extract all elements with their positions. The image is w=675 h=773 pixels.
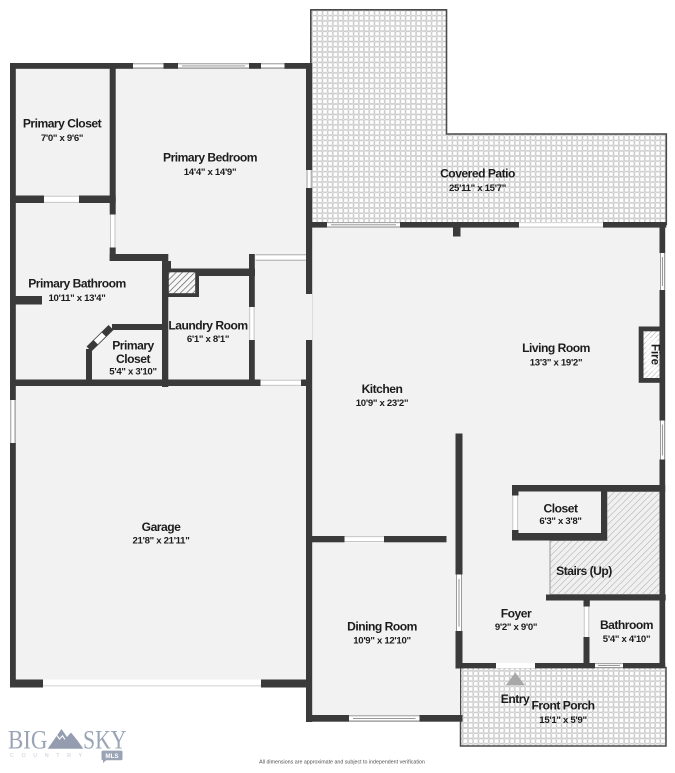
svg-text:Closet: Closet <box>116 352 150 366</box>
svg-text:7'0" x 9'6": 7'0" x 9'6" <box>41 133 83 144</box>
svg-text:Primary: Primary <box>112 339 154 353</box>
svg-text:6'3" x 3'8": 6'3" x 3'8" <box>539 516 581 527</box>
svg-text:Covered Patio: Covered Patio <box>440 167 515 181</box>
svg-text:21'8" x 21'11": 21'8" x 21'11" <box>133 536 190 547</box>
svg-text:Dining Room: Dining Room <box>347 620 417 634</box>
svg-text:Fire: Fire <box>649 344 661 365</box>
svg-text:5'4" x 4'10": 5'4" x 4'10" <box>603 634 650 645</box>
svg-text:Closet: Closet <box>544 502 578 516</box>
svg-text:14'4" x 14'9": 14'4" x 14'9" <box>184 167 236 178</box>
svg-text:Foyer: Foyer <box>501 607 532 621</box>
svg-text:MLS: MLS <box>105 753 118 760</box>
svg-text:9'2" x 9'0": 9'2" x 9'0" <box>495 622 537 633</box>
svg-text:10'9" x 23'2": 10'9" x 23'2" <box>356 398 408 409</box>
svg-text:Bathroom: Bathroom <box>600 618 653 632</box>
svg-text:Entry: Entry <box>501 692 530 706</box>
svg-text:BIG: BIG <box>8 725 48 755</box>
svg-text:15'1" x 5'9": 15'1" x 5'9" <box>539 715 586 726</box>
svg-text:Kitchen: Kitchen <box>362 382 403 396</box>
svg-text:25'11" x 15'7": 25'11" x 15'7" <box>449 183 506 194</box>
svg-text:13'3" x 19'2": 13'3" x 19'2" <box>530 358 582 369</box>
svg-text:6'1" x 8'1": 6'1" x 8'1" <box>187 334 229 345</box>
svg-text:COUNTRY: COUNTRY <box>10 753 90 759</box>
svg-text:Primary Bathroom: Primary Bathroom <box>28 277 126 291</box>
svg-text:Primary Bedroom: Primary Bedroom <box>163 151 257 165</box>
svg-text:Living Room: Living Room <box>522 341 590 355</box>
svg-text:Garage: Garage <box>142 520 181 534</box>
svg-text:Primary Closet: Primary Closet <box>23 117 102 131</box>
svg-text:10'9" x 12'10": 10'9" x 12'10" <box>353 636 410 647</box>
svg-text:Laundry Room: Laundry Room <box>168 319 247 333</box>
svg-text:All dimensions are approximate: All dimensions are approximate and subje… <box>259 760 425 766</box>
svg-text:5'4" x 3'10": 5'4" x 3'10" <box>109 367 156 378</box>
svg-text:Stairs (Up): Stairs (Up) <box>556 564 612 578</box>
svg-text:10'11" x 13'4": 10'11" x 13'4" <box>49 293 106 304</box>
svg-text:SKY: SKY <box>83 725 127 755</box>
svg-text:Front Porch: Front Porch <box>531 699 594 713</box>
